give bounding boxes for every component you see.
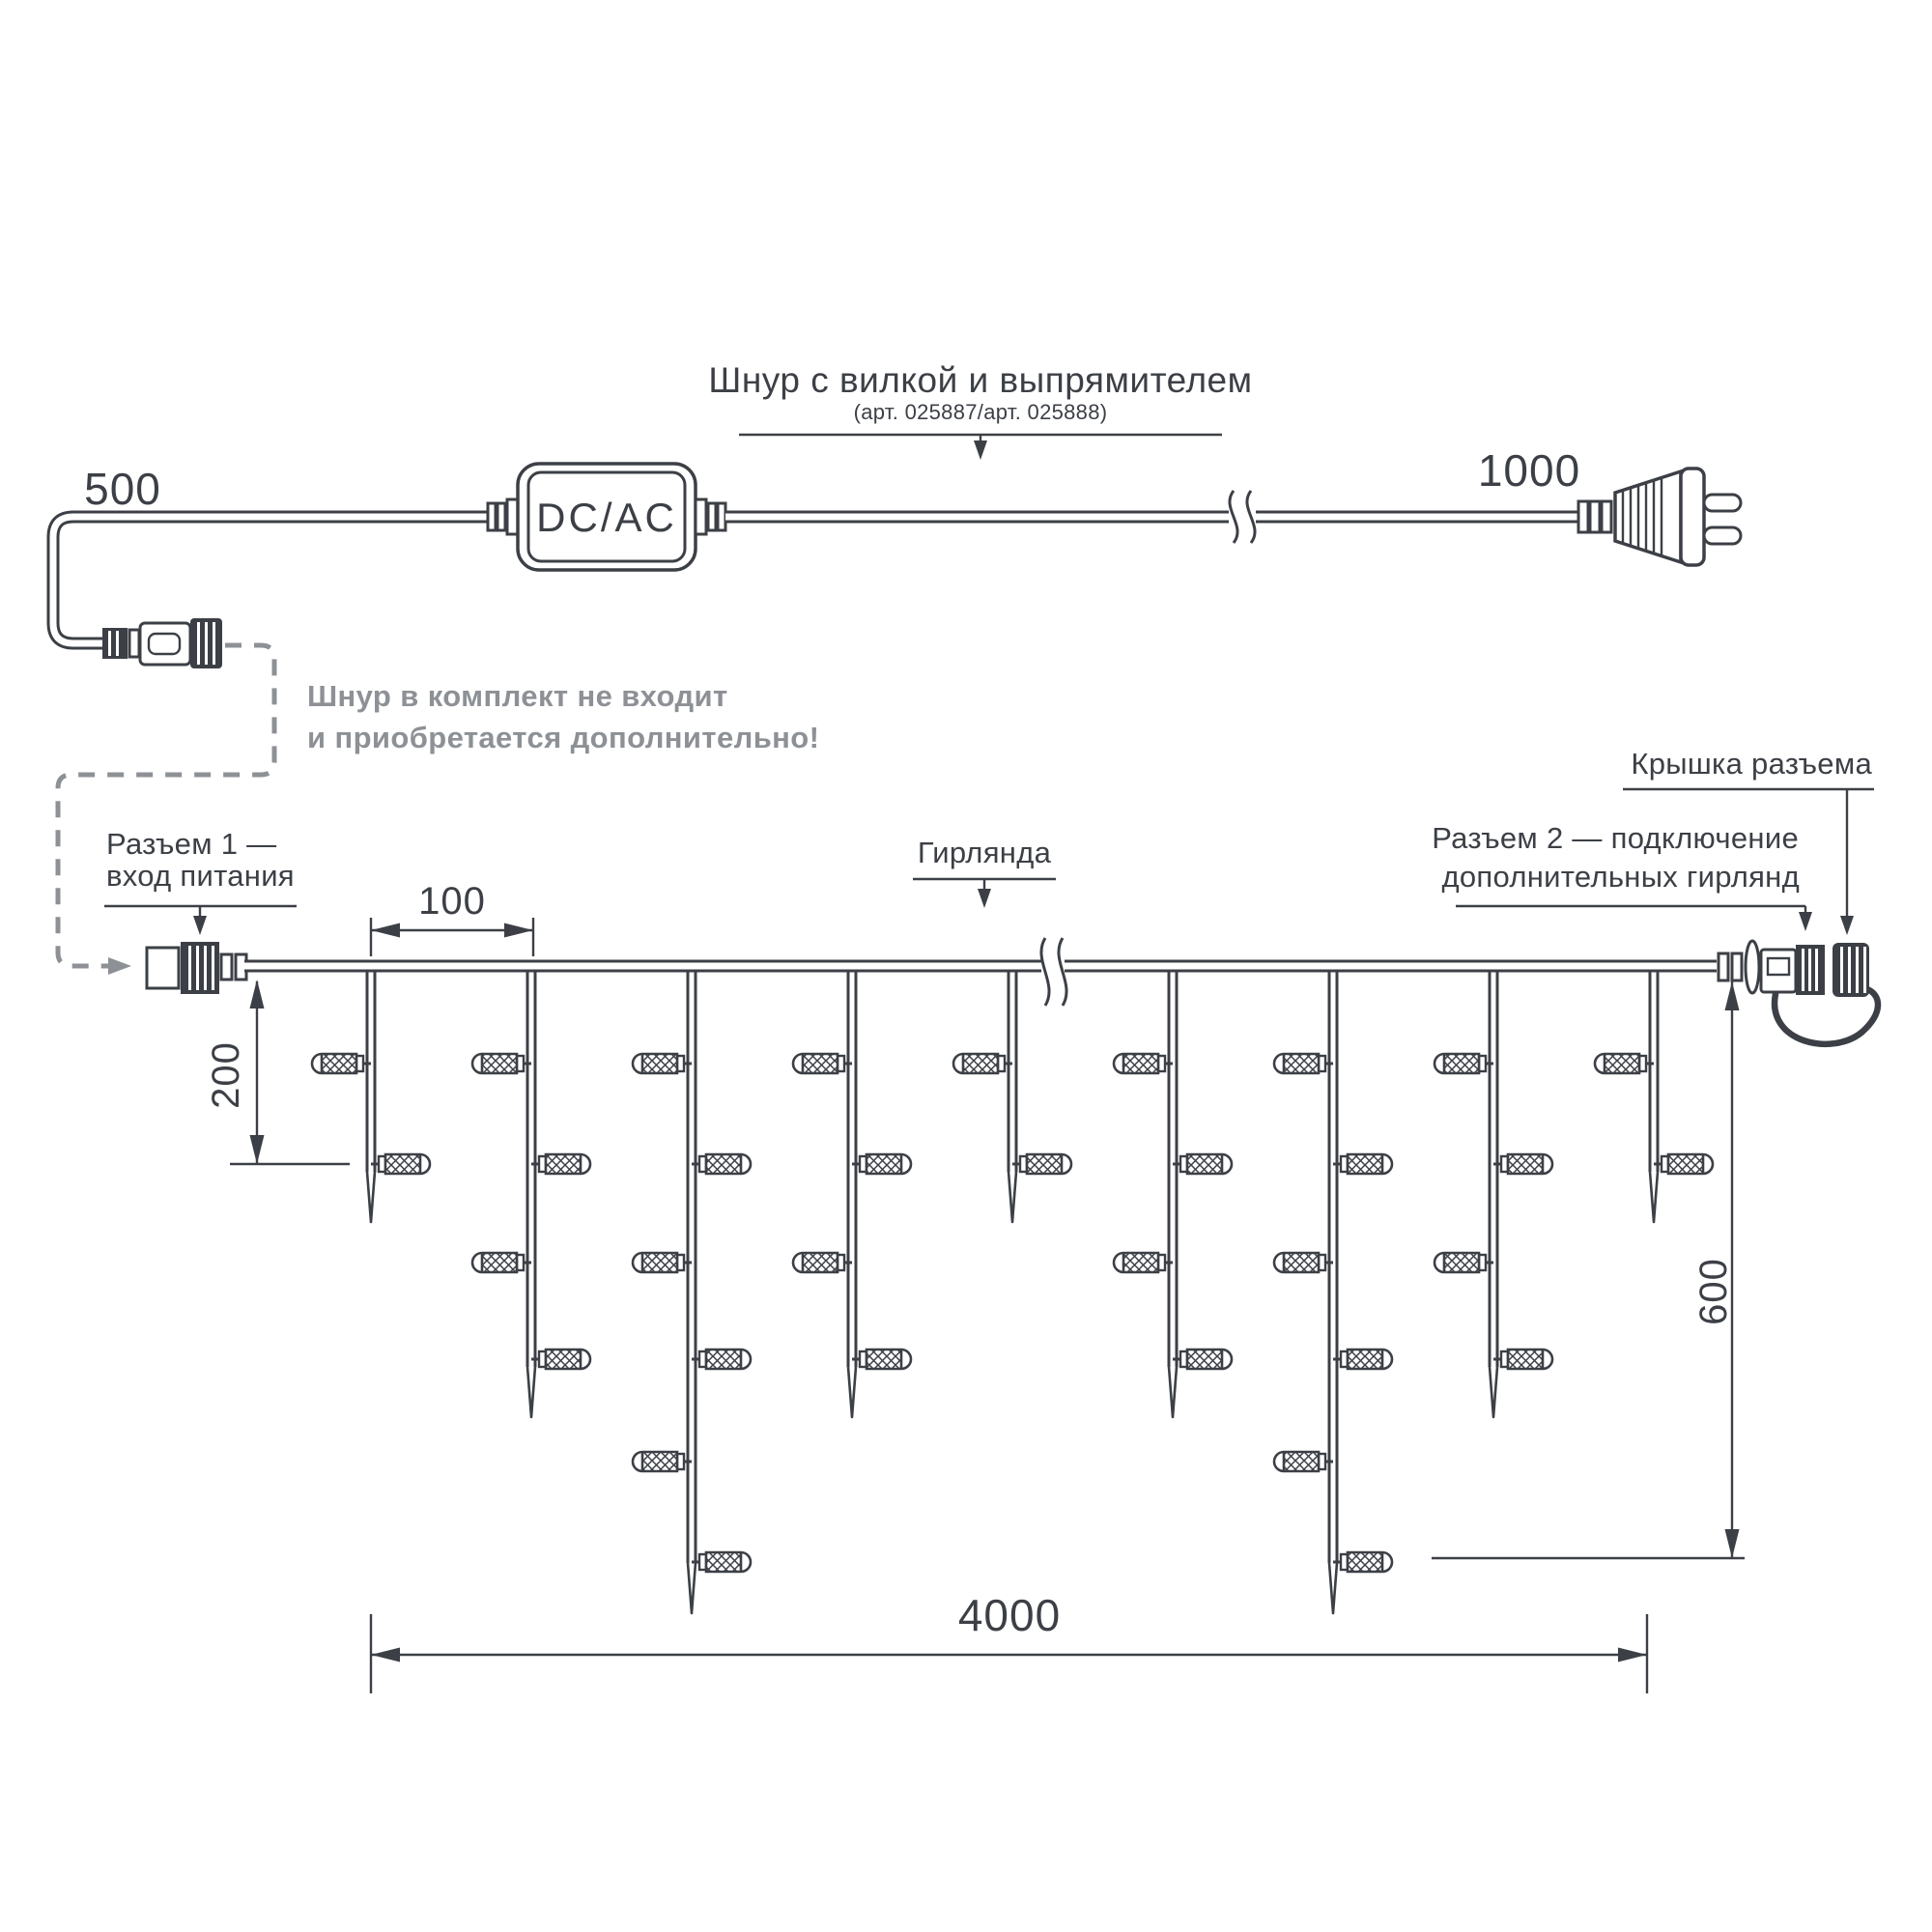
- dimension-500-label: 500: [84, 464, 161, 514]
- plug-pin: [1704, 495, 1741, 511]
- bulb-icon: [531, 1350, 590, 1369]
- bulb-icon: [852, 1154, 911, 1174]
- garland-connector-2: [1719, 941, 1878, 1044]
- garland-diagram: 500 DC/AC: [0, 0, 1932, 1932]
- connector-cap: [1833, 943, 1869, 997]
- bulb-icon: [1493, 1154, 1552, 1174]
- bulb-icon: [1435, 1054, 1493, 1073]
- garland-drop: [1114, 966, 1232, 1417]
- bulb-icon: [692, 1154, 751, 1174]
- garland-connector-1: [147, 942, 246, 994]
- connector1-label-line2: вход питания: [106, 859, 295, 893]
- note-line-2: и приобретается дополнительно!: [307, 721, 819, 754]
- bulb-icon: [1654, 1154, 1713, 1174]
- power-plug: [1578, 469, 1741, 565]
- dimension-4000-label: 4000: [958, 1590, 1061, 1640]
- bulb-icon: [1114, 1253, 1173, 1272]
- cord-title: Шнур с вилкой и выпрямителем: [708, 360, 1252, 400]
- garland-drop: [1435, 966, 1552, 1417]
- bulb-icon: [852, 1350, 911, 1369]
- bulb-icon: [371, 1154, 430, 1174]
- dimension-1000-label: 1000: [1478, 445, 1580, 496]
- bulb-icon: [793, 1054, 852, 1073]
- cord-break-icon: [1230, 491, 1255, 543]
- plug-pin: [1704, 527, 1741, 544]
- drop-tip: [1490, 1367, 1497, 1417]
- note-line-1: Шнур в комплект не входит: [307, 679, 728, 713]
- cap-tether: [1775, 989, 1878, 1044]
- garland-drop: [953, 966, 1071, 1222]
- bulb-icon: [531, 1154, 590, 1174]
- connector2-label-block: Разъем 2 — подключение дополнительных ги…: [1432, 821, 1812, 931]
- garland-drop: [472, 966, 590, 1417]
- bulb-icon: [793, 1253, 852, 1272]
- dimension-600-label: 600: [1692, 1258, 1735, 1325]
- garland-drop: [1274, 966, 1392, 1613]
- connector2-label-line2: дополнительных гирлянд: [1441, 860, 1800, 894]
- dashed-route-arrow-icon: [108, 957, 131, 975]
- dimension-200-label: 200: [205, 1041, 247, 1109]
- drop-tip: [527, 1367, 535, 1417]
- dimension-4000: 4000: [371, 1590, 1647, 1693]
- cord-subtitle: (арт. 025887/арт. 025888): [854, 400, 1108, 424]
- bulb-icon: [1274, 1054, 1333, 1073]
- dcac-label: DC/AC: [536, 495, 677, 540]
- garland-assembly: Разъем 1 — вход питания 100 200: [104, 747, 1878, 1693]
- technical-drawing-page: 500 DC/AC: [0, 0, 1932, 1932]
- bulb-icon: [692, 1552, 751, 1572]
- drop-tip: [848, 1367, 856, 1417]
- bulb-icon: [1012, 1154, 1071, 1174]
- dimension-100: 100: [371, 880, 533, 956]
- drop-tip: [1329, 1563, 1337, 1613]
- dcac-converter: DC/AC: [488, 464, 725, 570]
- bulb-icon: [633, 1054, 692, 1073]
- drop-tip: [367, 1172, 375, 1222]
- bulb-icon: [633, 1452, 692, 1471]
- connector1-label-line1: Разъем 1 —: [106, 827, 276, 861]
- bulb-icon: [472, 1054, 531, 1073]
- bulb-icon: [472, 1253, 531, 1272]
- not-included-note: Шнур в комплект не входит и приобретаетс…: [307, 679, 819, 754]
- garland-drop: [312, 966, 430, 1222]
- garland-label: Гирлянда: [918, 836, 1052, 869]
- bulb-icon: [1114, 1054, 1173, 1073]
- bulb-icon: [1595, 1054, 1654, 1073]
- bulb-icon: [1435, 1253, 1493, 1272]
- cord-500-wire: [53, 517, 490, 643]
- drop-tip: [688, 1563, 696, 1613]
- garland-drop: [793, 966, 911, 1417]
- bulb-icon: [1173, 1154, 1232, 1174]
- garland-drop: [1595, 966, 1713, 1222]
- not-included-route: [58, 645, 274, 975]
- bulb-icon: [1274, 1452, 1333, 1471]
- garland-leader-arrow-icon: [978, 889, 991, 908]
- cord-title-block: Шнур с вилкой и выпрямителем (арт. 02588…: [708, 360, 1252, 460]
- garland-drop: [633, 966, 751, 1613]
- bulb-icon: [1333, 1350, 1392, 1369]
- title-leader-arrow-icon: [974, 440, 987, 460]
- connector1-label-block: Разъем 1 — вход питания: [104, 827, 297, 935]
- bulb-icon: [1333, 1154, 1392, 1174]
- drop-tip: [1169, 1367, 1177, 1417]
- bulb-icon: [1173, 1350, 1232, 1369]
- bulb-icon: [1333, 1552, 1392, 1572]
- dimension-100-label: 100: [418, 880, 486, 923]
- connector2-leader-arrow-icon: [1799, 912, 1812, 931]
- connector2-label-line1: Разъем 2 — подключение: [1432, 821, 1799, 855]
- bulb-icon: [633, 1253, 692, 1272]
- bulb-icon: [312, 1054, 371, 1073]
- cap-label: Крышка разъема: [1631, 747, 1872, 781]
- garland-drops: [312, 966, 1713, 1613]
- bulb-icon: [1493, 1350, 1552, 1369]
- cord-output-connector: [102, 618, 222, 668]
- garland-break-icon: [1041, 938, 1066, 1006]
- bulb-icon: [1274, 1253, 1333, 1272]
- bulb-icon: [953, 1054, 1012, 1073]
- drop-tip: [1650, 1172, 1658, 1222]
- bulb-icon: [692, 1350, 751, 1369]
- connector1-leader-arrow-icon: [193, 916, 207, 935]
- cap-leader-arrow-icon: [1840, 916, 1854, 935]
- drop-tip: [1009, 1172, 1016, 1222]
- garland-label-block: Гирлянда: [913, 836, 1056, 908]
